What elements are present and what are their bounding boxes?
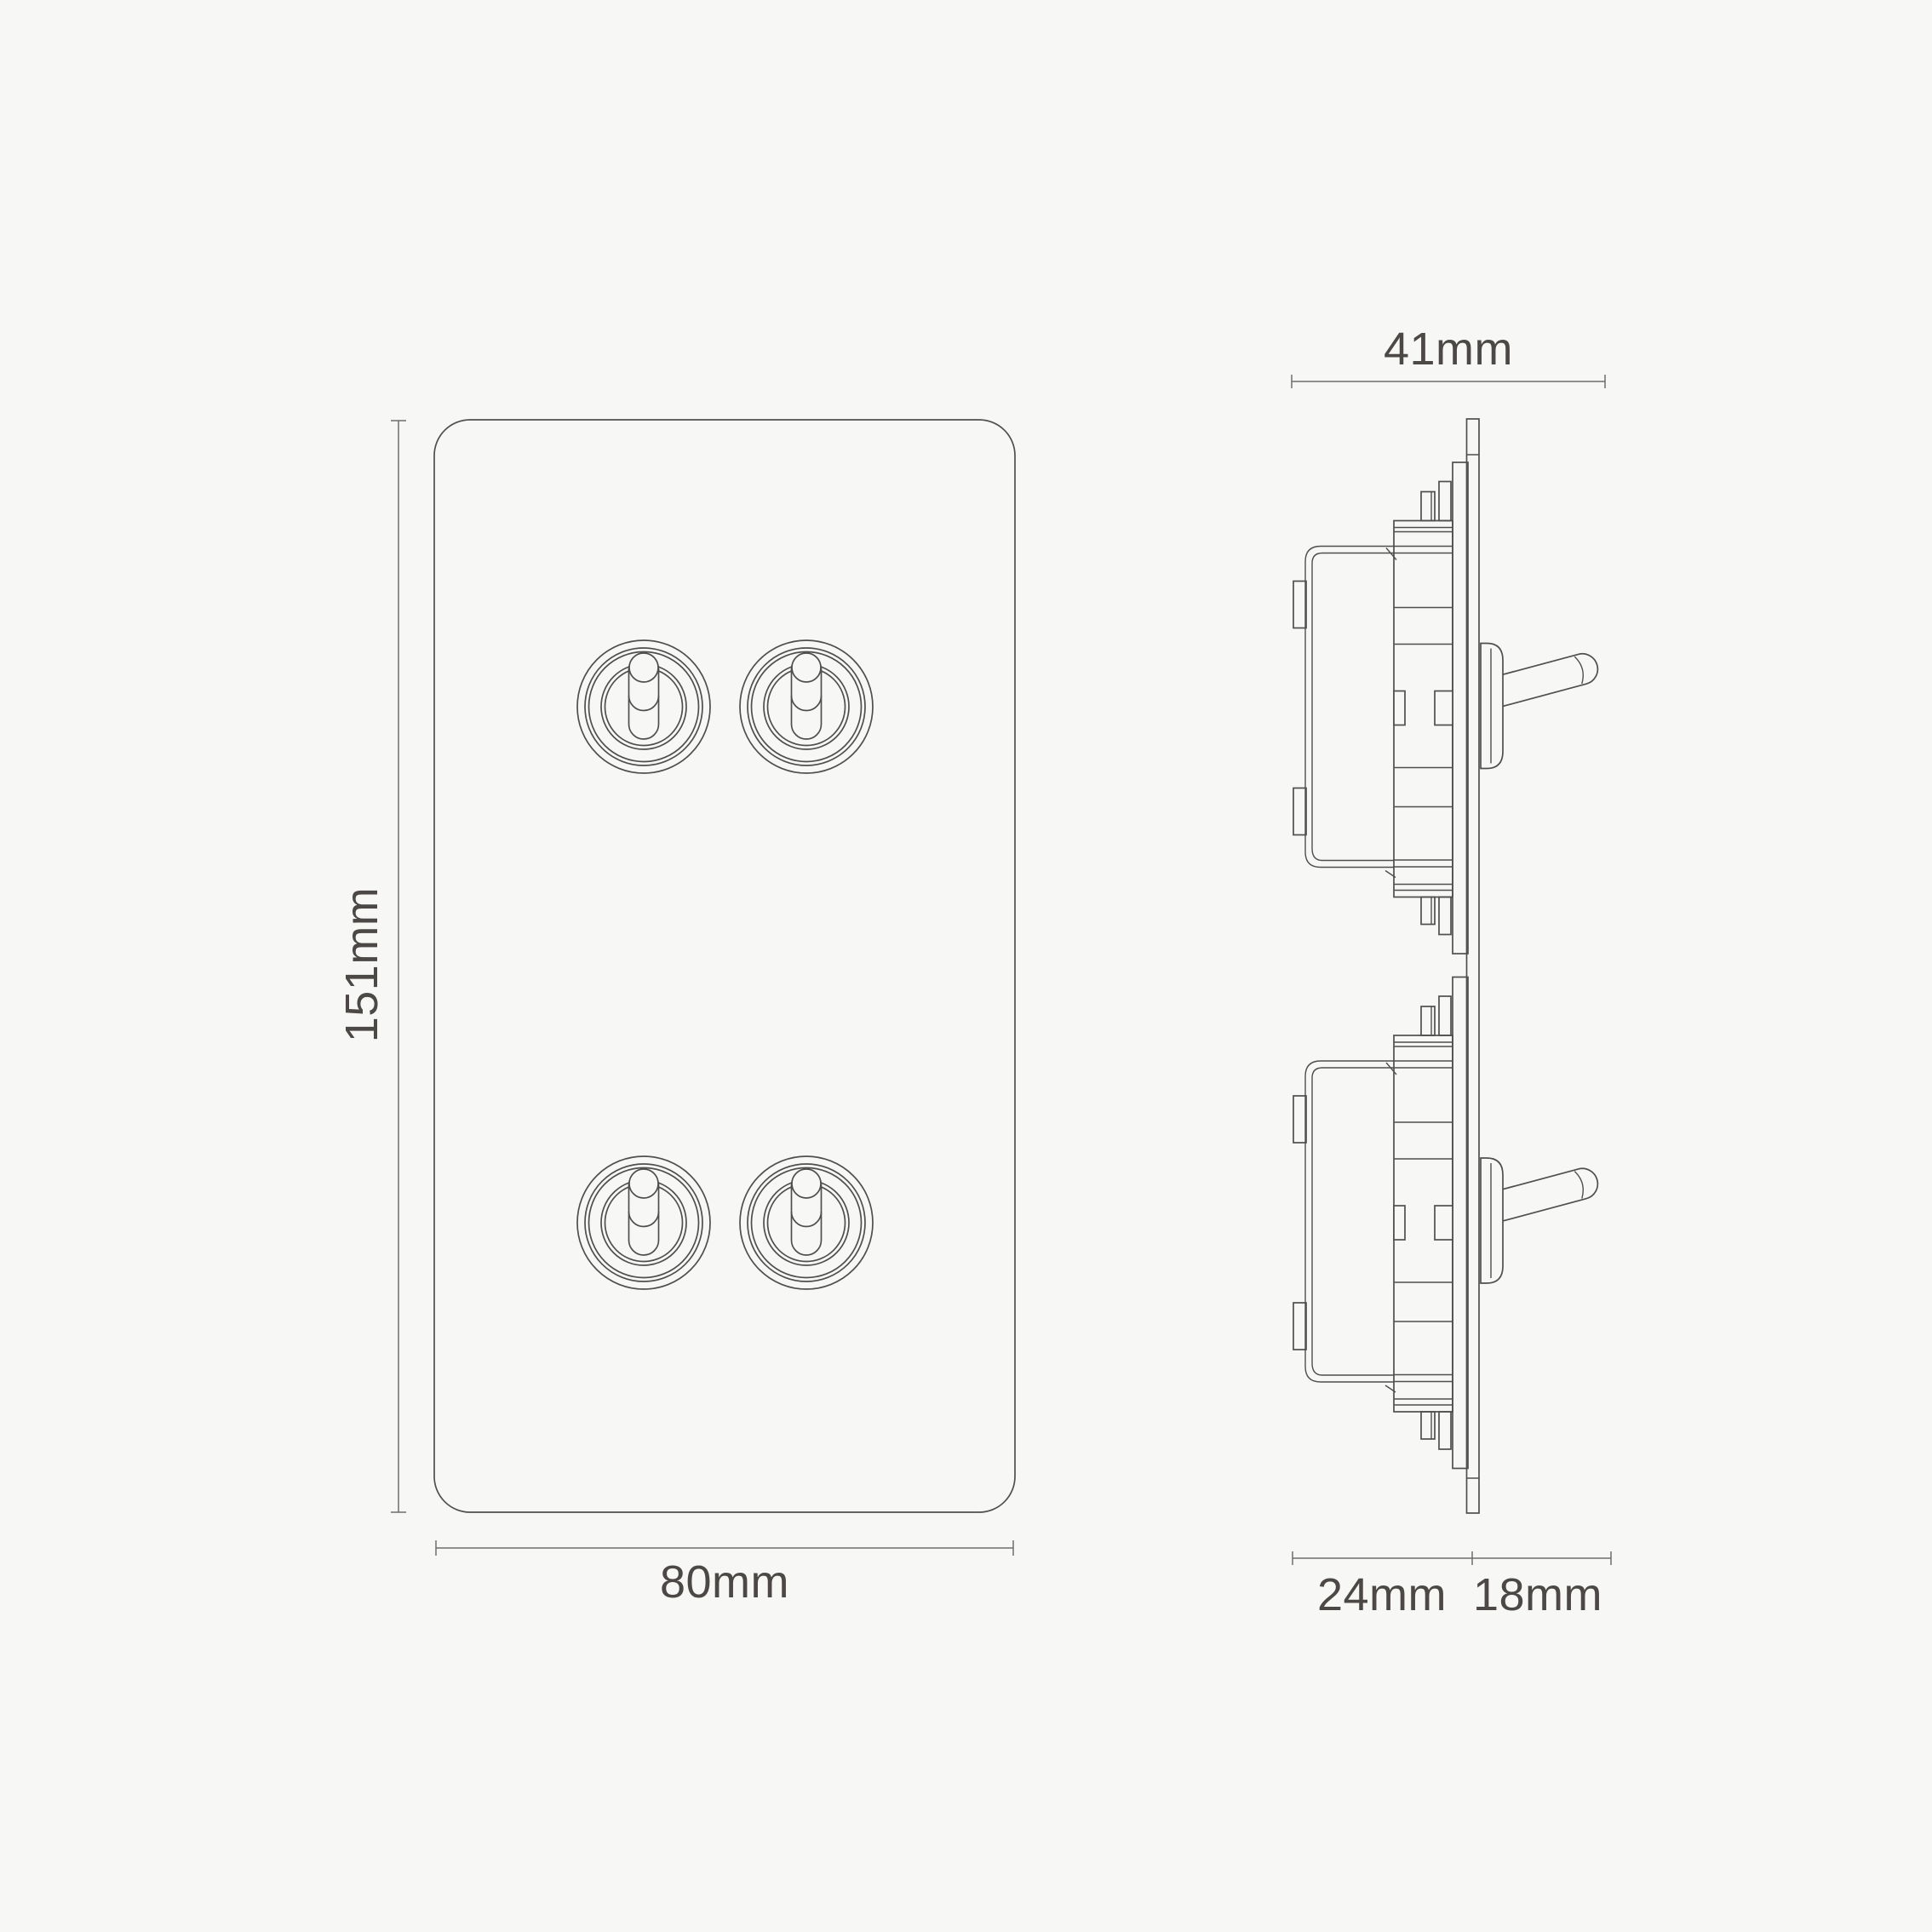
height-dimension-label: 151mm <box>336 887 387 1043</box>
switch-plate-front <box>434 420 1015 1512</box>
depth-split-dimension: 24mm 18mm <box>1293 1551 1611 1620</box>
projection-depth-label: 18mm <box>1473 1569 1602 1620</box>
side-view: 41mm 24mm 18mm <box>1292 324 1611 1620</box>
toggle-switch <box>577 640 710 773</box>
toggle-switch <box>740 640 873 773</box>
front-view: 151mm 80mm <box>336 420 1015 1608</box>
recessed-depth-label: 24mm <box>1317 1569 1447 1620</box>
switch-mechanism <box>1293 462 1601 954</box>
toggle-switch <box>577 1156 710 1289</box>
switch-dimension-diagram: 151mm 80mm 41mm 24mm 18 <box>0 0 1932 1932</box>
height-dimension: 151mm <box>336 421 406 1512</box>
switch-mechanism <box>1293 977 1601 1469</box>
width-dimension-label: 80mm <box>660 1556 789 1608</box>
overall-depth-label: 41mm <box>1384 324 1513 375</box>
toggle-switch <box>740 1156 873 1289</box>
dimension-drawing-page: 151mm 80mm 41mm 24mm 18 <box>0 0 1932 1932</box>
width-dimension: 80mm <box>436 1540 1013 1608</box>
overall-depth-dimension: 41mm <box>1292 324 1605 388</box>
